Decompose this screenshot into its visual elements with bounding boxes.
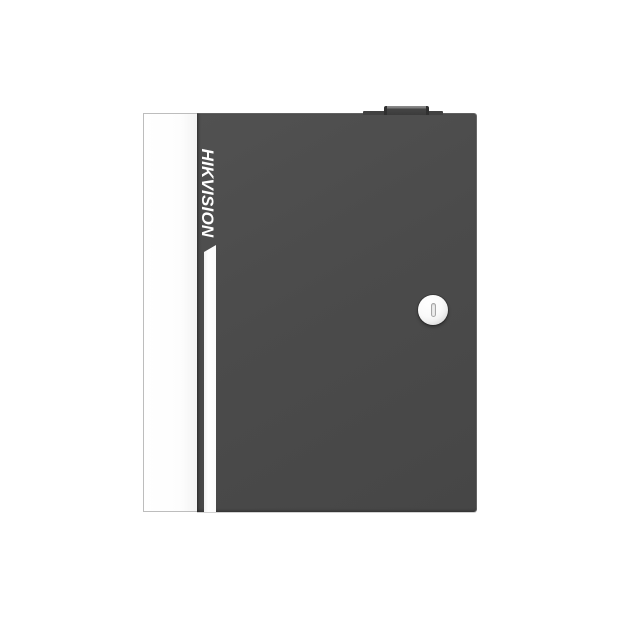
brand-logo-vertical: HIKVISION: [199, 141, 215, 245]
accent-stripe: [204, 245, 216, 512]
controller-enclosure: HIKVISION: [143, 113, 477, 512]
enclosure-side-panel: [143, 113, 197, 512]
product-photo-canvas: HIKVISION: [0, 0, 620, 620]
keyhole-slot-icon: [431, 303, 436, 317]
cam-lock: [418, 295, 448, 325]
top-latch-tab: [384, 106, 429, 115]
enclosure-front-door: HIKVISION: [197, 113, 477, 512]
